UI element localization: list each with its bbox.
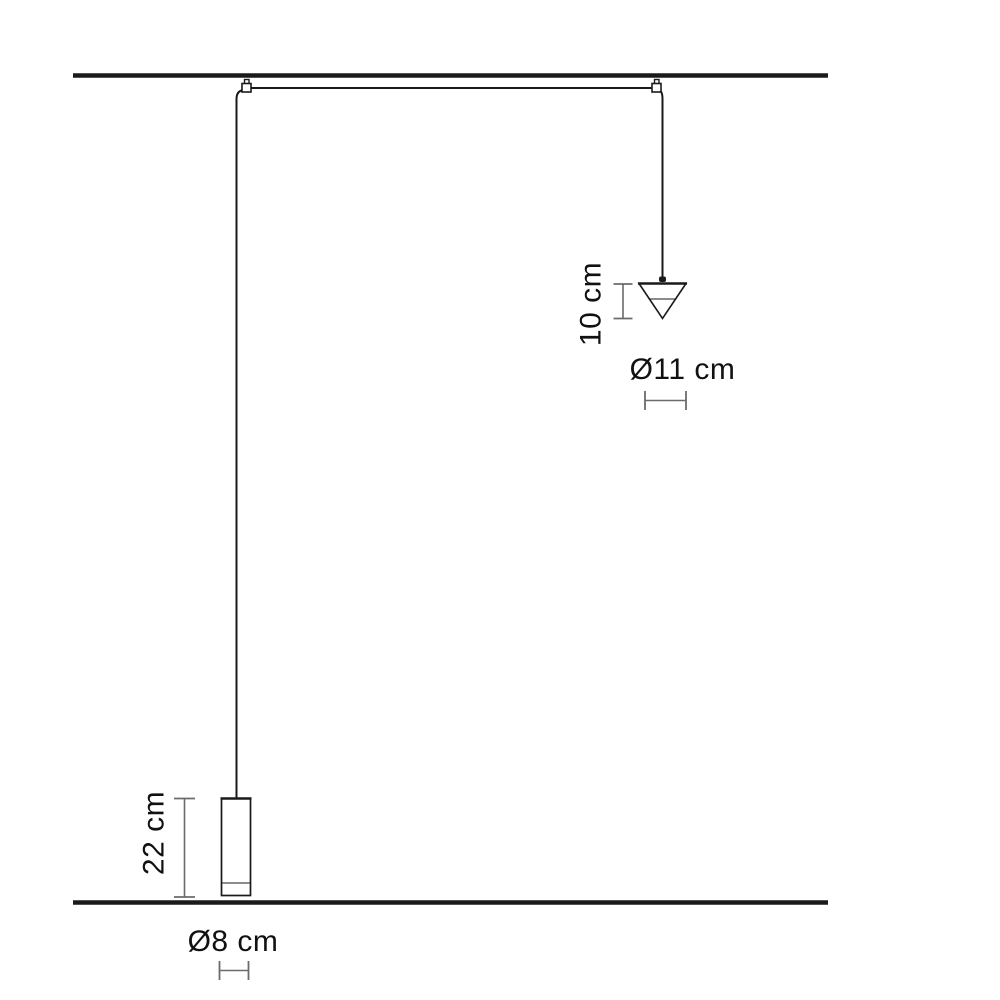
cylinder-diameter-dimension: [220, 961, 249, 980]
right-mount-body: [652, 84, 661, 93]
cylinder-height-dimension: [174, 799, 195, 898]
left-mount-body: [242, 84, 251, 93]
cone-pendant-lamp: [638, 277, 687, 319]
cone-cable-connector: [659, 277, 666, 283]
cylinder-body: [222, 799, 251, 896]
cone-height-label: 10 cm: [575, 262, 608, 346]
pendant-lamp-diagram: 10 cm Ø11 cm 22 cm Ø8 cm: [0, 0, 1000, 1000]
right-ceiling-mount: [652, 80, 661, 93]
cylinder-height-label: 22 cm: [138, 791, 171, 875]
cone-shade: [639, 284, 686, 319]
cylinder-diameter-label: Ø8 cm: [188, 925, 279, 958]
left-drop-cable: [237, 90, 246, 798]
cone-diameter-label: Ø11 cm: [630, 353, 736, 386]
cone-diameter-dimension: [645, 391, 686, 410]
dimension-drawing: 10 cm Ø11 cm 22 cm Ø8 cm: [0, 0, 1000, 1000]
left-ceiling-mount: [242, 80, 251, 93]
cone-height-dimension: [614, 284, 633, 319]
right-drop-cable: [658, 90, 663, 277]
cylinder-pendant-lamp: [221, 799, 252, 896]
main-linework: [73, 76, 828, 903]
